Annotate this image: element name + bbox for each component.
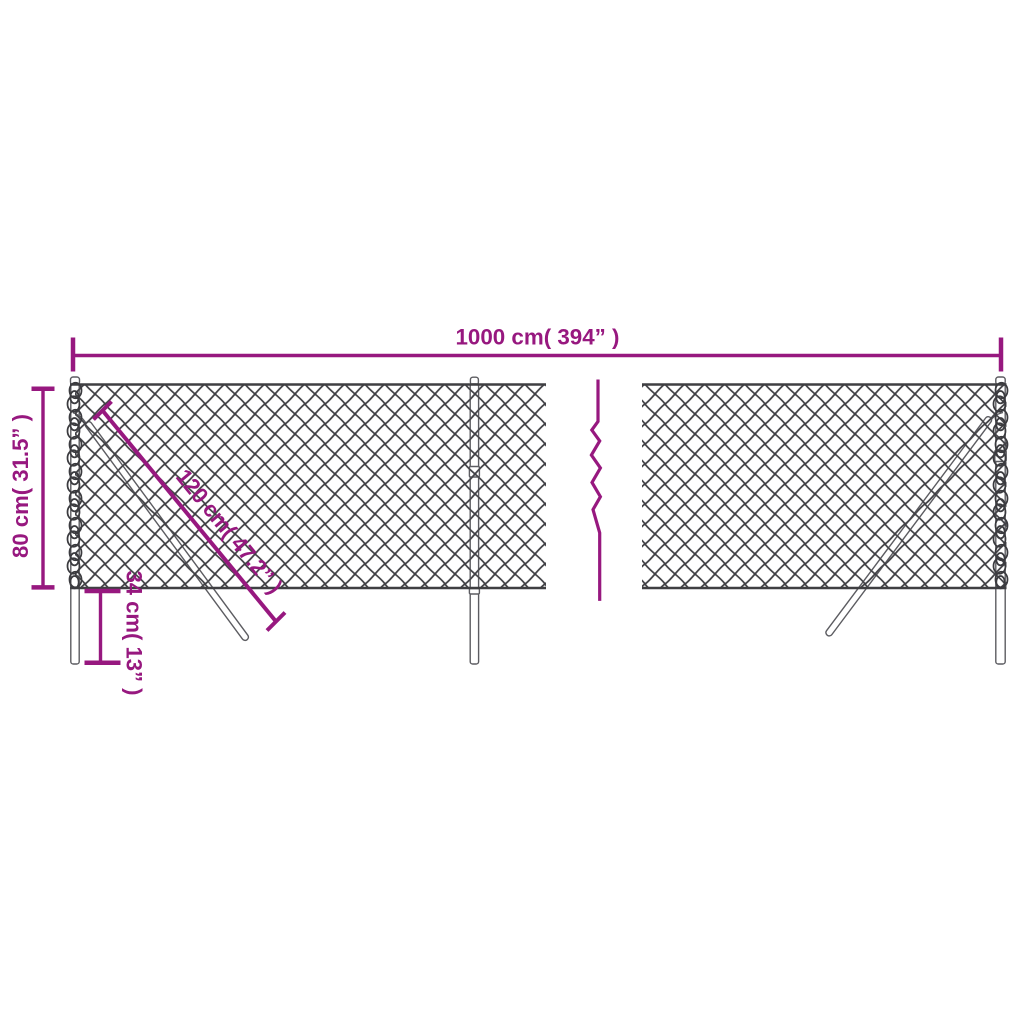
svg-text:1000 cm( 394” ): 1000 cm( 394” ) <box>456 325 620 350</box>
svg-text:80 cm( 31.5” ): 80 cm( 31.5” ) <box>8 414 33 558</box>
svg-text:34 cm( 13” ): 34 cm( 13” ) <box>122 571 147 696</box>
